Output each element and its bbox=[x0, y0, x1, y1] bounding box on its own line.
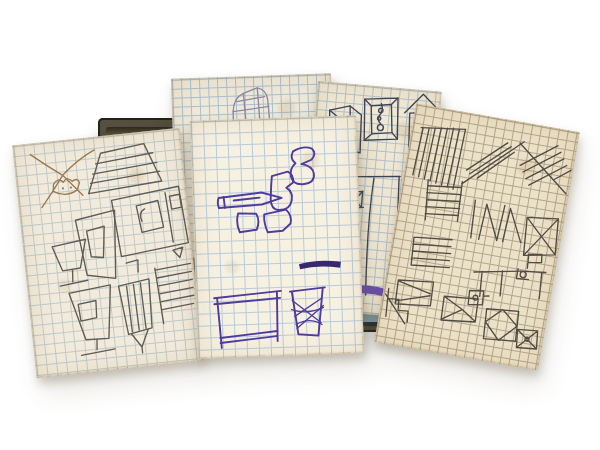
purple-doodle-card-sketch bbox=[191, 116, 363, 358]
graph-card-front-center bbox=[190, 115, 364, 359]
photo-canvas bbox=[0, 0, 600, 450]
graph-card-far-left bbox=[12, 128, 204, 378]
goblet-card-sketch bbox=[13, 129, 202, 377]
